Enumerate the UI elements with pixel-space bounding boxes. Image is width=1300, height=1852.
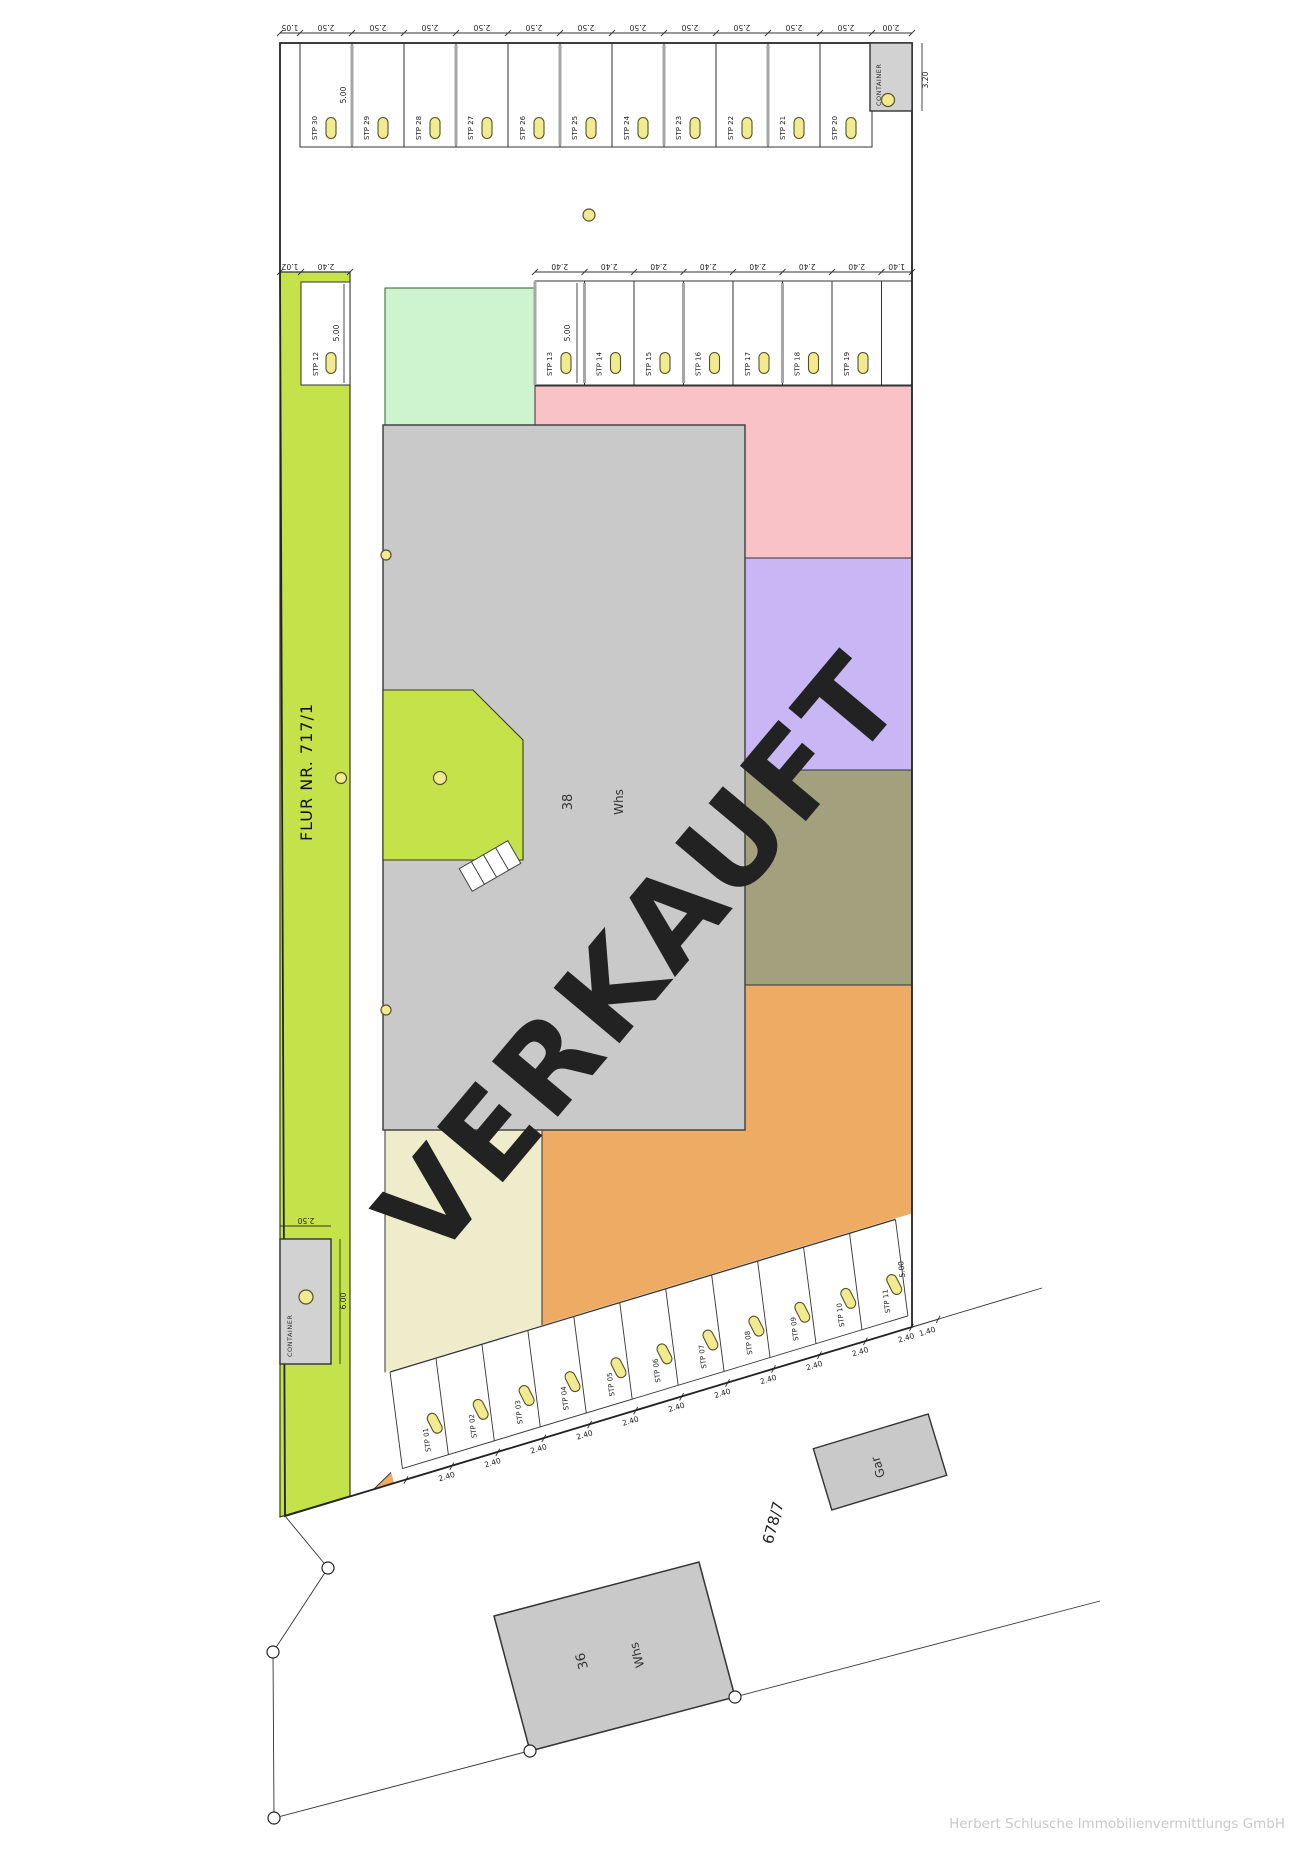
dim-label: 2.50 (297, 1216, 314, 1225)
survey-point (729, 1691, 741, 1703)
stall-badge (858, 353, 868, 374)
dim-label: 3.20 (921, 71, 930, 88)
dim-label: 2.40 (551, 262, 568, 271)
parking-stall (585, 281, 635, 385)
stall-label: STP 28 (415, 116, 423, 140)
stall-label: STP 15 (645, 352, 653, 376)
parking-stall (684, 281, 734, 385)
dim-label: 2.40 (317, 262, 334, 271)
stall-label: STP 27 (467, 116, 475, 140)
dim-label: 2.50 (473, 23, 490, 32)
dim-label: 5.00 (339, 86, 348, 103)
stall-badge (690, 118, 700, 139)
stall-badge (378, 118, 388, 139)
stall-label: STP 23 (675, 116, 683, 140)
marker-circle (583, 209, 595, 221)
stall-badge (710, 353, 720, 374)
stall-badge (794, 118, 804, 139)
dim-label: 2.50 (421, 23, 438, 32)
stall-badge (326, 353, 336, 374)
dim-label: 2.40 (601, 262, 618, 271)
building-38-type: Whs (612, 789, 626, 815)
survey-point (322, 1562, 334, 1574)
stall-label: STP 20 (831, 116, 839, 140)
stall-badge (809, 353, 819, 374)
marker-circle (882, 94, 895, 107)
stall-badge (326, 118, 336, 139)
dim-label: 2.50 (317, 23, 334, 32)
dim-label: 2.50 (837, 23, 854, 32)
stall-label: STP 13 (546, 352, 554, 376)
parking-row-middle: STP 132.40STP 142.40STP 152.40STP 162.40… (532, 262, 915, 385)
parking-stall (832, 281, 882, 385)
dim-label: 6.00 (339, 1292, 348, 1309)
stall-badge (742, 118, 752, 139)
parking-stall (301, 282, 350, 385)
parking-stall (634, 281, 684, 385)
stall-badge (586, 118, 596, 139)
stall-label: STP 29 (363, 116, 371, 140)
parking-row-top: 1.05STP 302.50STP 292.50STP 282.50STP 27… (277, 23, 915, 147)
survey-point (524, 1745, 536, 1757)
flur-label: FLUR NR. 717/1 (297, 703, 316, 841)
stall-label: STP 17 (744, 352, 752, 376)
marker-circle (299, 1290, 313, 1304)
stall-label: STP 26 (519, 115, 527, 140)
site-plan-canvas: 38 Whs 1.05STP 302.50STP 292.50STP 282.5… (0, 0, 1300, 1852)
parcel-mint (385, 288, 535, 425)
stall-label: STP 16 (695, 351, 703, 376)
dim-label: 2.50 (525, 23, 542, 32)
dim-label: 2.50 (785, 23, 802, 32)
dim-label: 2.40 (650, 262, 667, 271)
stall-badge (759, 353, 769, 374)
container-top-right: CONTAINER 3.20 2.00 (870, 23, 930, 111)
stall-label: STP 12 (312, 352, 320, 376)
survey-point (268, 1812, 280, 1824)
marker-circle (381, 1005, 391, 1015)
stall-label: STP 30 (311, 116, 319, 140)
dim-label: 5.00 (563, 324, 572, 341)
stall-label: STP 25 (571, 116, 579, 140)
stall-badge (561, 353, 571, 374)
dim-label: 2.40 (749, 262, 766, 271)
container-label: CONTAINER (286, 1315, 294, 1357)
stall-badge (611, 353, 621, 374)
dim-label: 2.50 (681, 23, 698, 32)
stall-label: STP 24 (623, 115, 631, 140)
building-38-number: 38 (561, 794, 576, 811)
dim-label: 2.40 (799, 262, 816, 271)
parking-stall (783, 281, 833, 385)
stall-badge (482, 118, 492, 139)
dim-label: 2.50 (369, 23, 386, 32)
stall-badge (846, 118, 856, 139)
dim-label: 2.50 (733, 23, 750, 32)
footer-credit: Herbert Schlusche Immobilienvermittlungs… (949, 1816, 1285, 1832)
survey-point (267, 1646, 279, 1658)
stall-label: STP 18 (794, 352, 802, 376)
dim-label: 2.40 (848, 262, 865, 271)
dim-label: 2.00 (882, 23, 899, 32)
dim-label: 2.50 (629, 23, 646, 32)
stall-label: STP 21 (779, 116, 787, 140)
stall-badge (660, 353, 670, 374)
parking-stall (733, 281, 783, 385)
stall-badge (638, 118, 648, 139)
stall-badge (430, 118, 440, 139)
dim-label: 1.40 (888, 262, 905, 271)
building-36 (494, 1562, 735, 1751)
stall-label: STP 22 (727, 116, 735, 140)
dim-label: 2.50 (577, 23, 594, 32)
dim-label: 5.00 (332, 324, 341, 341)
stall-badge (534, 118, 544, 139)
marker-circle (434, 772, 447, 785)
parking-stall (882, 281, 913, 385)
stall-label: STP 19 (843, 352, 851, 376)
site-plan-drawing: 38 Whs 1.05STP 302.50STP 292.50STP 282.5… (0, 0, 1300, 1852)
marker-circle (336, 773, 347, 784)
dim-label: 1.02 (281, 262, 298, 271)
marker-circle (381, 550, 391, 560)
garage: Gar (813, 1414, 946, 1510)
stall-label: STP 14 (596, 351, 604, 376)
neighbor-parcel-label: 678/7 (759, 1499, 788, 1545)
dim-label: 1.05 (281, 23, 298, 32)
dim-label: 2.40 (700, 262, 717, 271)
